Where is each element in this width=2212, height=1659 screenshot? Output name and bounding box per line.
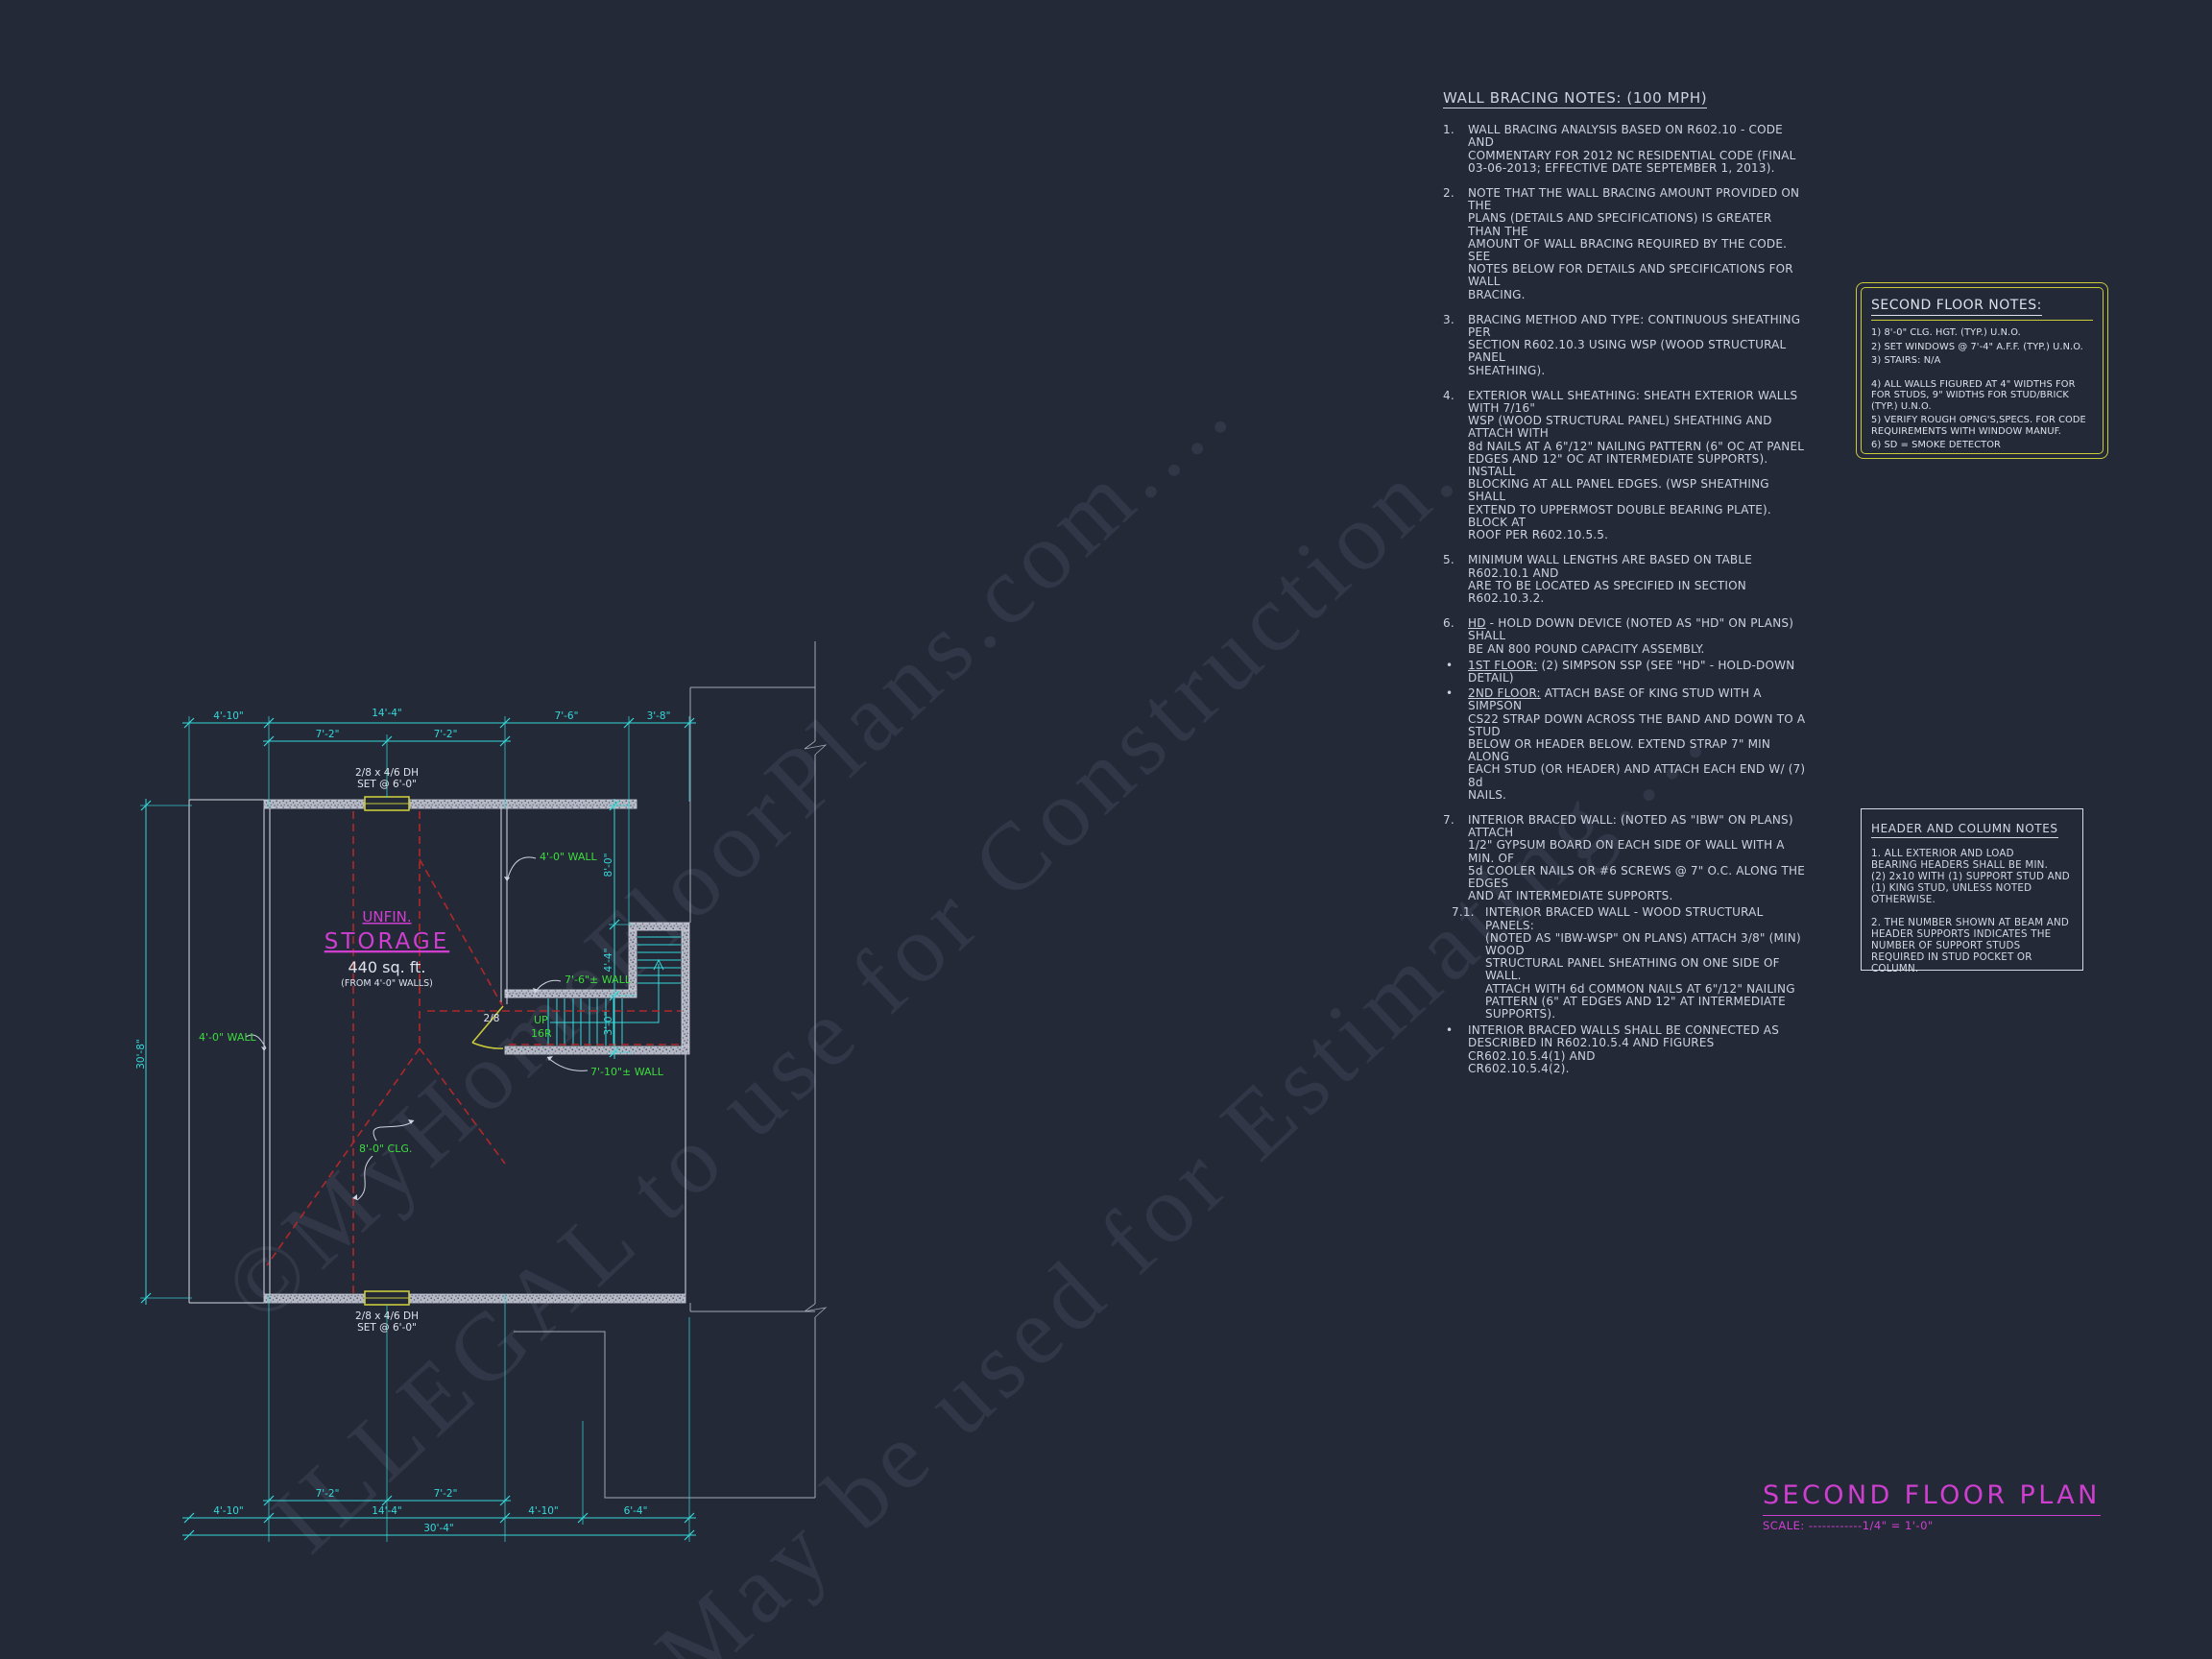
room-area-note: (FROM 4'-0" WALLS): [341, 978, 433, 989]
note-hd-rest: - HOLD DOWN DEVICE (NOTED AS "HD" ON PLA…: [1468, 616, 1793, 655]
wall-bracing-heading: WALL BRACING NOTES: (100 MPH): [1443, 92, 1707, 108]
dim-right-3-0: 3'-0": [603, 1012, 614, 1036]
note-item-6-bullet-2: • 2ND FLOOR: ATTACH BASE OF KING STUD WI…: [1443, 687, 1806, 802]
note-text: MINIMUM WALL LENGTHS ARE BASED ON TABLE …: [1468, 554, 1806, 605]
label-16r: 16R: [531, 1027, 552, 1040]
sheet-scale: SCALE: ------------1/4" = 1'-0": [1763, 1519, 2101, 1532]
note-num: 3.: [1443, 314, 1468, 377]
dimension-ticks: [141, 718, 694, 1540]
note-2nd-floor-rest: ATTACH BASE OF KING STUD WITH A SIMPSON …: [1468, 686, 1805, 802]
note-1st-floor-label: 1ST FLOOR:: [1468, 659, 1537, 672]
dim-top-3-8: 3'-8": [647, 710, 671, 722]
room-label: UNFIN. STORAGE 440 sq. ft. (FROM 4'-0" W…: [325, 908, 450, 989]
dim-top-14-4: 14'-4": [372, 708, 402, 719]
title-block: SECOND FLOOR PLAN SCALE: ------------1/4…: [1763, 1480, 2101, 1532]
note-text: BRACING METHOD AND TYPE: CONTINUOUS SHEA…: [1468, 314, 1806, 377]
note-num: 2.: [1443, 187, 1468, 301]
note-item-7: 7. INTERIOR BRACED WALL: (NOTED AS "IBW"…: [1443, 814, 1806, 902]
room-unfin: UNFIN.: [362, 908, 411, 926]
note-text: 1ST FLOOR: (2) SIMPSON SSP (SEE "HD" - H…: [1468, 660, 1806, 685]
bullet-icon: •: [1443, 660, 1468, 685]
dim-bot-7-2b: 7'-2": [434, 1488, 458, 1500]
header-column-notes-box: HEADER AND COLUMN NOTES 1. ALL EXTERIOR …: [1861, 808, 2083, 971]
dim-top-7-2b: 7'-2": [434, 729, 458, 740]
room-storage: STORAGE: [325, 929, 450, 954]
header-note-2: 2. THE NUMBER SHOWN AT BEAM AND HEADER S…: [1871, 917, 2073, 974]
note-hd-label: HD: [1468, 616, 1486, 630]
note-item-2: 2. NOTE THAT THE WALL BRACING AMOUNT PRO…: [1443, 187, 1806, 301]
cad-drawing-canvas: ©MyHomeFloorPlans.com.... ILLEGAL to use…: [0, 0, 2212, 1659]
note-2nd-floor-label: 2ND FLOOR:: [1468, 686, 1541, 700]
note-item-3: 3. BRACING METHOD AND TYPE: CONTINUOUS S…: [1443, 314, 1806, 377]
label-wall-7-6: 7'-6"± WALL: [565, 974, 632, 986]
sfn-item-2: 2) SET WINDOWS @ 7'-4" A.F.F. (TYP.) U.N…: [1871, 342, 2093, 353]
dim-left-30-8: 30'-8": [135, 1039, 147, 1070]
bullet-icon: •: [1443, 1024, 1468, 1075]
label-wall-4-0-right: 4'-0" WALL: [540, 851, 597, 863]
label-wall-4-0-left: 4'-0" WALL: [199, 1031, 256, 1044]
note-item-7-bullet: • INTERIOR BRACED WALLS SHALL BE CONNECT…: [1443, 1024, 1806, 1075]
sfn-item-5: 5) VERIFY ROUGH OPNG'S,SPECS. FOR CODE R…: [1871, 415, 2093, 437]
note-num: 1.: [1443, 124, 1468, 175]
note-text: HD - HOLD DOWN DEVICE (NOTED AS "HD" ON …: [1468, 617, 1806, 656]
note-item-4: 4. EXTERIOR WALL SHEATHING: SHEATH EXTER…: [1443, 390, 1806, 541]
note-text: WALL BRACING ANALYSIS BASED ON R602.10 -…: [1468, 124, 1806, 175]
walls-hatched: [264, 800, 689, 1303]
note-item-6: 6. HD - HOLD DOWN DEVICE (NOTED AS "HD" …: [1443, 617, 1806, 656]
note-item-1: 1. WALL BRACING ANALYSIS BASED ON R602.1…: [1443, 124, 1806, 175]
white-plan-text: 2/8 x 4/6 DH SET @ 6'-0" 2/8 x 4/6 DH SE…: [355, 767, 499, 1334]
note-text: INTERIOR BRACED WALLS SHALL BE CONNECTED…: [1468, 1024, 1806, 1075]
dim-right-4-4: 4'-4": [603, 949, 614, 973]
dim-bot-4-10b: 4'-10": [528, 1505, 559, 1517]
dim-bot-30-4: 30'-4": [423, 1523, 454, 1534]
note-text: NOTE THAT THE WALL BRACING AMOUNT PROVID…: [1468, 187, 1806, 301]
label-clg-8-0: 8'-0" CLG.: [359, 1142, 412, 1155]
note-text: EXTERIOR WALL SHEATHING: SHEATH EXTERIOR…: [1468, 390, 1806, 541]
note-item-6-bullet-1: • 1ST FLOOR: (2) SIMPSON SSP (SEE "HD" -…: [1443, 660, 1806, 685]
dim-top-7-6: 7'-6": [555, 710, 579, 722]
note-num: 7.: [1443, 814, 1468, 902]
label-wall-7-10: 7'-10"± WALL: [590, 1066, 664, 1078]
label-up: UP: [534, 1014, 548, 1026]
second-floor-notes-box: SECOND FLOOR NOTES: 1) 8'-0" CLG. HGT. (…: [1856, 282, 2108, 459]
adjacent-roof-outline: [514, 641, 826, 1498]
label-window-top-2: SET @ 6'-0": [357, 779, 417, 790]
note-num: 5.: [1443, 554, 1468, 605]
sfn-item-4: 4) ALL WALLS FIGURED AT 4" WIDTHS FOR FO…: [1871, 379, 2093, 413]
header-note-1: 1. ALL EXTERIOR AND LOAD BEARING HEADERS…: [1871, 848, 2073, 905]
label-door-2-8: 2/8: [484, 1013, 500, 1024]
dim-bot-14-4: 14'-4": [372, 1505, 402, 1517]
wall-bracing-notes: WALL BRACING NOTES: (100 MPH) 1. WALL BR…: [1443, 92, 1806, 1078]
note-num: 7.1.: [1443, 906, 1485, 1021]
second-floor-notes-rule: SECOND FLOOR NOTES:: [1871, 295, 2093, 321]
note-num: 4.: [1443, 390, 1468, 541]
dim-bot-6-4: 6'-4": [624, 1505, 648, 1517]
room-area: 440 sq. ft.: [349, 958, 426, 976]
note-text: INTERIOR BRACED WALL: (NOTED AS "IBW" ON…: [1468, 814, 1806, 902]
window-symbols: [365, 797, 409, 1305]
label-window-top-1: 2/8 x 4/6 DH: [355, 767, 419, 779]
green-labels: 4'-0" WALL 4'-0" WALL 8'-0" CLG. 7'-6"± …: [199, 851, 664, 1155]
second-floor-notes-inner: SECOND FLOOR NOTES: 1) 8'-0" CLG. HGT. (…: [1861, 287, 2104, 454]
note-item-7-1: 7.1. INTERIOR BRACED WALL - WOOD STRUCTU…: [1443, 906, 1806, 1021]
second-floor-notes-heading: SECOND FLOOR NOTES:: [1871, 298, 2042, 316]
dimension-text: 4'-10" 14'-4" 7'-6" 3'-8" 7'-2" 7'-2" 7'…: [135, 708, 670, 1534]
sfn-item-6: 6) SD = SMOKE DETECTOR: [1871, 440, 2093, 451]
label-window-bottom-1: 2/8 x 4/6 DH: [355, 1310, 419, 1322]
note-text: 2ND FLOOR: ATTACH BASE OF KING STUD WITH…: [1468, 687, 1806, 802]
dim-top-4-10: 4'-10": [213, 710, 244, 722]
sheet-title: SECOND FLOOR PLAN: [1763, 1480, 2101, 1516]
dim-bot-4-10a: 4'-10": [213, 1505, 244, 1517]
bullet-icon: •: [1443, 687, 1468, 802]
note-item-5: 5. MINIMUM WALL LENGTHS ARE BASED ON TAB…: [1443, 554, 1806, 605]
dim-right-8-0: 8'-0": [603, 854, 614, 878]
sfn-item-3: 3) STAIRS: N/A: [1871, 355, 2093, 367]
note-text: INTERIOR BRACED WALL - WOOD STRUCTURAL P…: [1485, 906, 1806, 1021]
dim-bot-7-2a: 7'-2": [316, 1488, 340, 1500]
header-column-notes-heading: HEADER AND COLUMN NOTES: [1871, 822, 2058, 838]
note-num: 6.: [1443, 617, 1468, 656]
dimension-lines: [140, 716, 696, 1542]
sfn-item-1: 1) 8'-0" CLG. HGT. (TYP.) U.N.O.: [1871, 327, 2093, 339]
label-window-bottom-2: SET @ 6'-0": [357, 1322, 417, 1334]
dim-top-7-2a: 7'-2": [316, 729, 340, 740]
